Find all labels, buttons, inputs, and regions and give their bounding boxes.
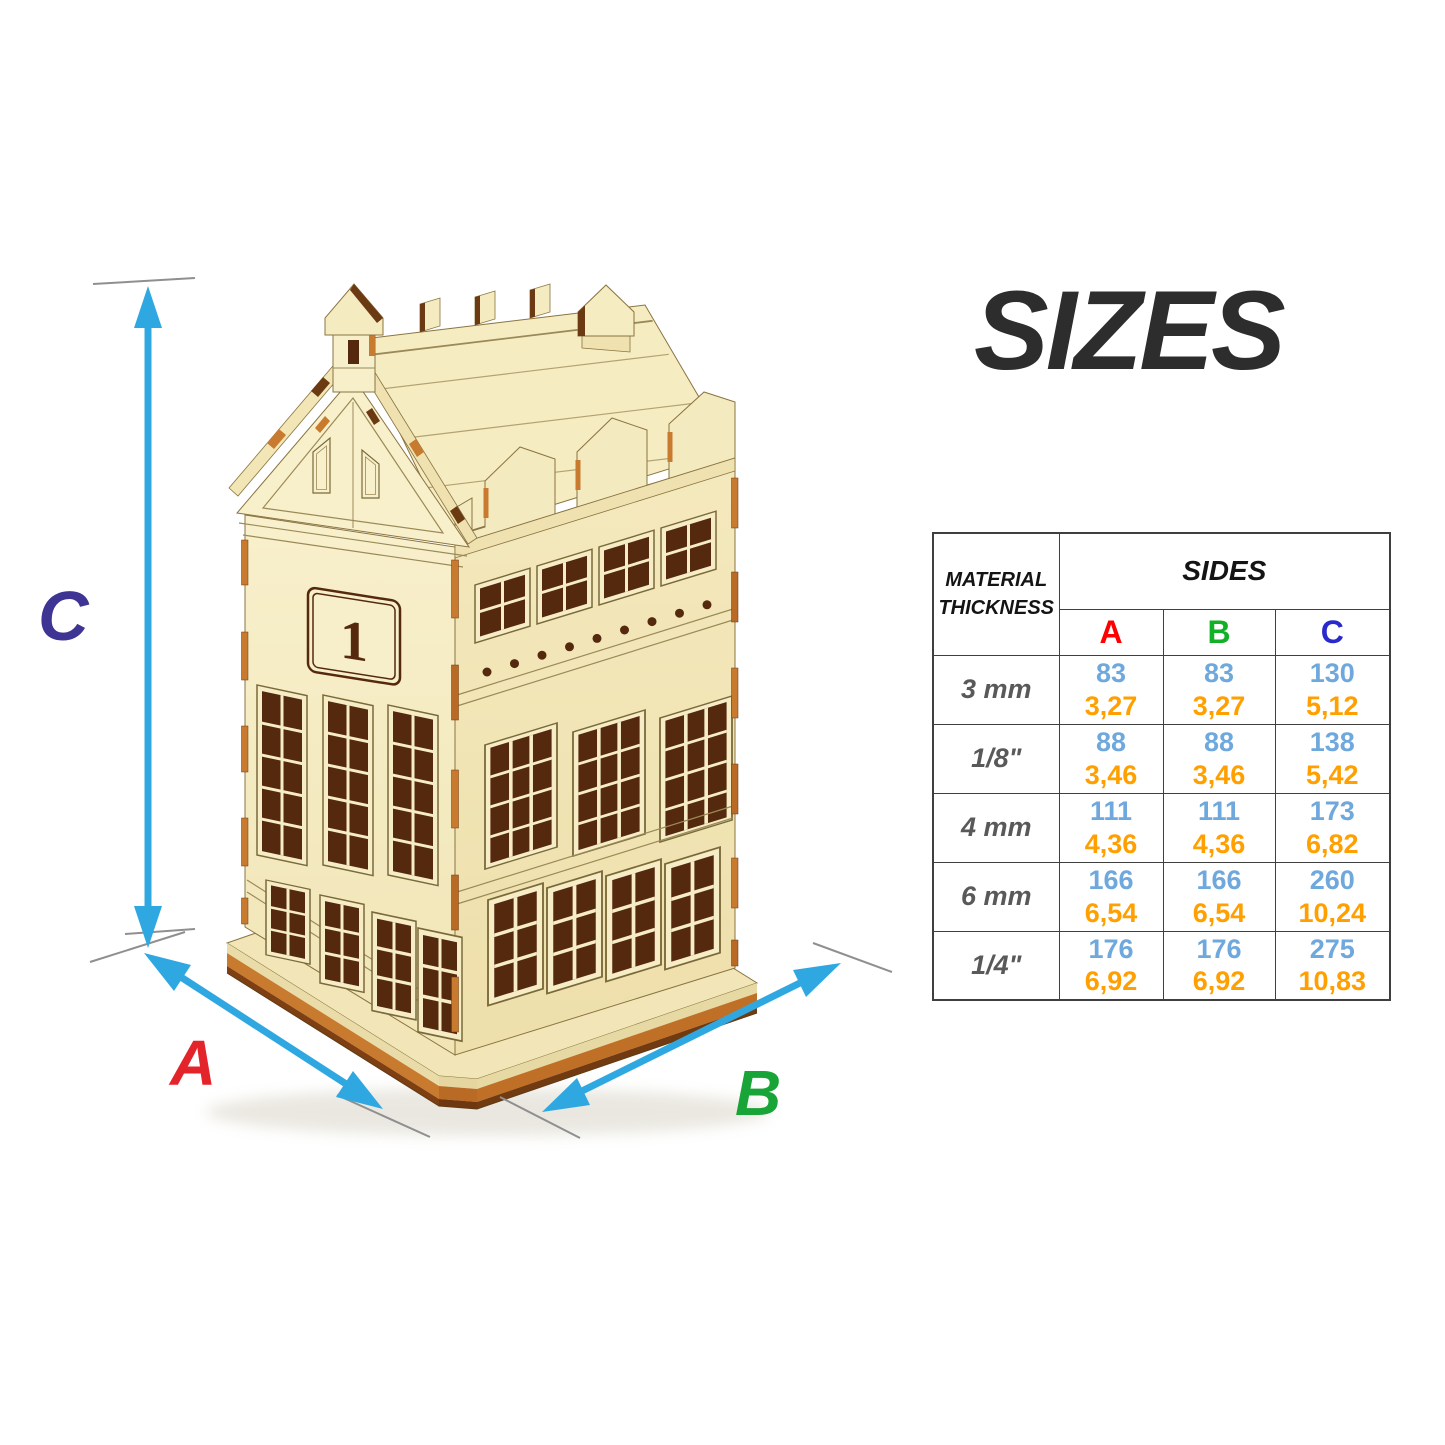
roof-finial xyxy=(578,285,634,352)
table-cell-size: 883,46 xyxy=(1163,724,1275,793)
table-header-material-thickness: MATERIAL THICKNESS xyxy=(933,533,1059,655)
house-chimney xyxy=(325,284,383,392)
table-cell-size: 1666,54 xyxy=(1059,862,1163,931)
house-number-plaque: 1 xyxy=(308,587,400,686)
value-mm: 111 xyxy=(1060,795,1163,827)
value-mm: 88 xyxy=(1164,726,1275,758)
table-cell-thickness: 4 mm xyxy=(933,793,1059,862)
value-mm: 83 xyxy=(1060,657,1163,689)
sizes-table-body: 3 mm833,27833,271305,121/8"883,46883,461… xyxy=(933,655,1390,1000)
table-cell-size: 883,46 xyxy=(1059,724,1163,793)
table-row: 1/4"1766,921766,9227510,83 xyxy=(933,931,1390,1000)
house-illustration: 1 xyxy=(206,284,770,1136)
value-inch: 10,83 xyxy=(1276,965,1390,997)
dimension-arrow-c xyxy=(134,286,162,948)
table-row: 3 mm833,27833,271305,12 xyxy=(933,655,1390,724)
table-cell-size: 1736,82 xyxy=(1275,793,1390,862)
table-cell-size: 27510,83 xyxy=(1275,931,1390,1000)
table-row: 6 mm1666,541666,5426010,24 xyxy=(933,862,1390,931)
value-inch: 6,92 xyxy=(1164,965,1275,997)
house-right-facade xyxy=(455,458,735,1055)
value-mm: 130 xyxy=(1276,657,1390,689)
value-mm: 260 xyxy=(1276,864,1390,896)
page: 1 xyxy=(0,0,1445,1445)
table-row: 4 mm1114,361114,361736,82 xyxy=(933,793,1390,862)
value-inch: 4,36 xyxy=(1164,828,1275,860)
value-mm: 176 xyxy=(1164,933,1275,965)
table-cell-size: 1305,12 xyxy=(1275,655,1390,724)
table-header-side-c: C xyxy=(1275,609,1390,655)
table-header-sides: SIDES xyxy=(1059,533,1390,609)
value-inch: 6,92 xyxy=(1060,965,1163,997)
page-title: SIZES xyxy=(974,266,1283,395)
value-mm: 83 xyxy=(1164,657,1275,689)
dimension-label-c: C xyxy=(38,577,90,655)
value-mm: 176 xyxy=(1060,933,1163,965)
value-mm: 138 xyxy=(1276,726,1390,758)
table-cell-size: 1766,92 xyxy=(1059,931,1163,1000)
house-number: 1 xyxy=(340,608,368,674)
value-inch: 5,12 xyxy=(1276,690,1390,722)
value-mm: 275 xyxy=(1276,933,1390,965)
table-cell-size: 26010,24 xyxy=(1275,862,1390,931)
value-mm: 173 xyxy=(1276,795,1390,827)
value-inch: 3,46 xyxy=(1060,759,1163,791)
value-inch: 3,46 xyxy=(1164,759,1275,791)
table-row: 1/8"883,46883,461385,42 xyxy=(933,724,1390,793)
value-inch: 3,27 xyxy=(1164,690,1275,722)
value-mm: 166 xyxy=(1164,864,1275,896)
table-cell-thickness: 1/8" xyxy=(933,724,1059,793)
value-inch: 4,36 xyxy=(1060,828,1163,860)
value-inch: 3,27 xyxy=(1060,690,1163,722)
table-cell-size: 1666,54 xyxy=(1163,862,1275,931)
table-cell-size: 1385,42 xyxy=(1275,724,1390,793)
dimension-label-b: B xyxy=(735,1057,781,1129)
table-header-side-a: A xyxy=(1059,609,1163,655)
table-cell-thickness: 1/4" xyxy=(933,931,1059,1000)
table-cell-thickness: 6 mm xyxy=(933,862,1059,931)
value-inch: 6,82 xyxy=(1276,828,1390,860)
table-cell-size: 1114,36 xyxy=(1163,793,1275,862)
tick-c-top xyxy=(93,278,195,284)
value-inch: 6,54 xyxy=(1060,897,1163,929)
sizes-table: MATERIAL THICKNESS SIDES ABC 3 mm833,278… xyxy=(932,532,1391,1001)
value-mm: 166 xyxy=(1060,864,1163,896)
dimension-label-a: A xyxy=(168,1027,216,1099)
table-cell-size: 833,27 xyxy=(1059,655,1163,724)
table-cell-size: 1766,92 xyxy=(1163,931,1275,1000)
table-header-side-b: B xyxy=(1163,609,1275,655)
dimension-diagram: 1 xyxy=(20,240,920,1200)
table-cell-size: 833,27 xyxy=(1163,655,1275,724)
table-cell-thickness: 3 mm xyxy=(933,655,1059,724)
value-mm: 111 xyxy=(1164,795,1275,827)
value-inch: 6,54 xyxy=(1164,897,1275,929)
tick-a-start xyxy=(90,932,185,962)
table-cell-size: 1114,36 xyxy=(1059,793,1163,862)
value-inch: 5,42 xyxy=(1276,759,1390,791)
value-inch: 10,24 xyxy=(1276,897,1390,929)
value-mm: 88 xyxy=(1060,726,1163,758)
